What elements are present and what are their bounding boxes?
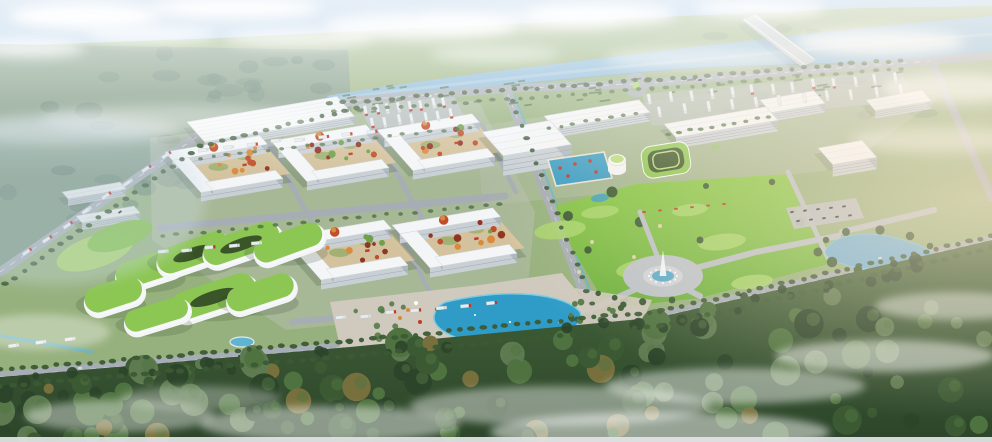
aerial-masterplan-rendering xyxy=(0,0,992,442)
bottom-strip xyxy=(0,437,992,442)
rendering-canvas xyxy=(0,0,992,442)
